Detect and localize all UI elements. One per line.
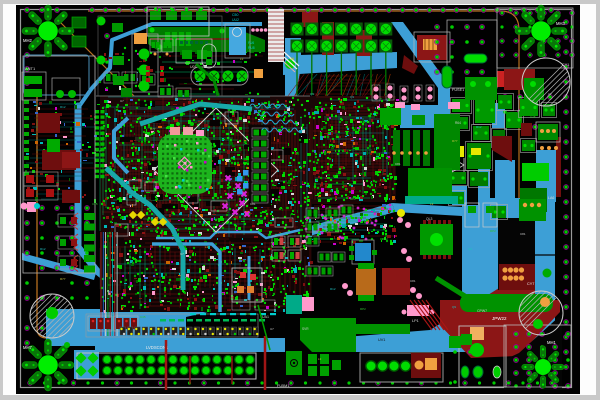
svg-text:FU6: FU6 <box>248 41 254 45</box>
svg-text:QL3: QL3 <box>426 217 433 221</box>
svg-text:R77: R77 <box>150 127 156 131</box>
svg-text:R64: R64 <box>455 121 461 125</box>
svg-text:RP2: RP2 <box>360 307 366 311</box>
svg-text:R12: R12 <box>40 247 46 251</box>
svg-text:U7: U7 <box>548 92 552 96</box>
svg-text:ANT1: ANT1 <box>25 66 36 71</box>
svg-text:SVR: SVR <box>302 327 309 331</box>
svg-text:L3: L3 <box>430 202 434 206</box>
svg-text:RU8: RU8 <box>248 46 255 50</box>
svg-text:MH1: MH1 <box>547 340 557 345</box>
svg-text:C81: C81 <box>250 202 256 206</box>
svg-text:MH2: MH2 <box>23 38 33 43</box>
svg-text:UV1: UV1 <box>378 338 385 342</box>
svg-text:Q9: Q9 <box>468 247 472 251</box>
svg-text:C45: C45 <box>140 315 146 319</box>
svg-text:C45: C45 <box>92 202 98 206</box>
svg-text:R77: R77 <box>60 277 66 281</box>
svg-text:JM: JM <box>290 57 295 61</box>
svg-text:Q9: Q9 <box>310 92 314 96</box>
svg-text:L3: L3 <box>205 245 209 249</box>
svg-text:C45: C45 <box>96 149 102 153</box>
svg-text:C45: C45 <box>245 312 251 316</box>
svg-text:C81: C81 <box>395 162 401 166</box>
svg-text:U7: U7 <box>180 252 184 256</box>
svg-text:Q9: Q9 <box>452 305 456 309</box>
svg-text:R12: R12 <box>476 125 482 129</box>
svg-text:U7: U7 <box>270 327 274 331</box>
svg-text:C45: C45 <box>530 115 536 119</box>
svg-text:FU5M1: FU5M1 <box>277 384 289 388</box>
svg-text:MH3: MH3 <box>556 21 566 26</box>
svg-text:CPW7: CPW7 <box>477 309 487 313</box>
svg-text:FUSE1: FUSE1 <box>452 88 464 92</box>
svg-text:UA1: UA1 <box>262 315 269 319</box>
svg-text:LP1: LP1 <box>412 319 419 323</box>
svg-text:CY1: CY1 <box>562 63 569 67</box>
svg-text:RP2: RP2 <box>350 197 356 201</box>
svg-text:R12: R12 <box>132 223 138 227</box>
svg-text:Q9: Q9 <box>350 95 354 99</box>
svg-text:JPW22: JPW22 <box>492 316 507 321</box>
svg-text:RP2: RP2 <box>490 229 496 233</box>
svg-text:UU2: UU2 <box>232 18 239 22</box>
svg-text:R12: R12 <box>60 105 66 109</box>
svg-text:L3: L3 <box>240 57 244 61</box>
svg-text:U7: U7 <box>120 99 124 103</box>
svg-text:C81: C81 <box>520 232 526 236</box>
svg-text:L3: L3 <box>318 357 322 361</box>
svg-text:MH7: MH7 <box>23 345 33 350</box>
svg-text:RP2: RP2 <box>382 237 388 241</box>
svg-text:C81: C81 <box>410 279 416 283</box>
svg-text:CY7: CY7 <box>527 282 534 286</box>
svg-text:R77: R77 <box>452 139 458 143</box>
svg-text:R12: R12 <box>330 287 336 291</box>
svg-text:R77: R77 <box>300 247 306 251</box>
svg-text:C50: C50 <box>232 13 238 17</box>
svg-text:LA6: LA6 <box>548 196 554 200</box>
